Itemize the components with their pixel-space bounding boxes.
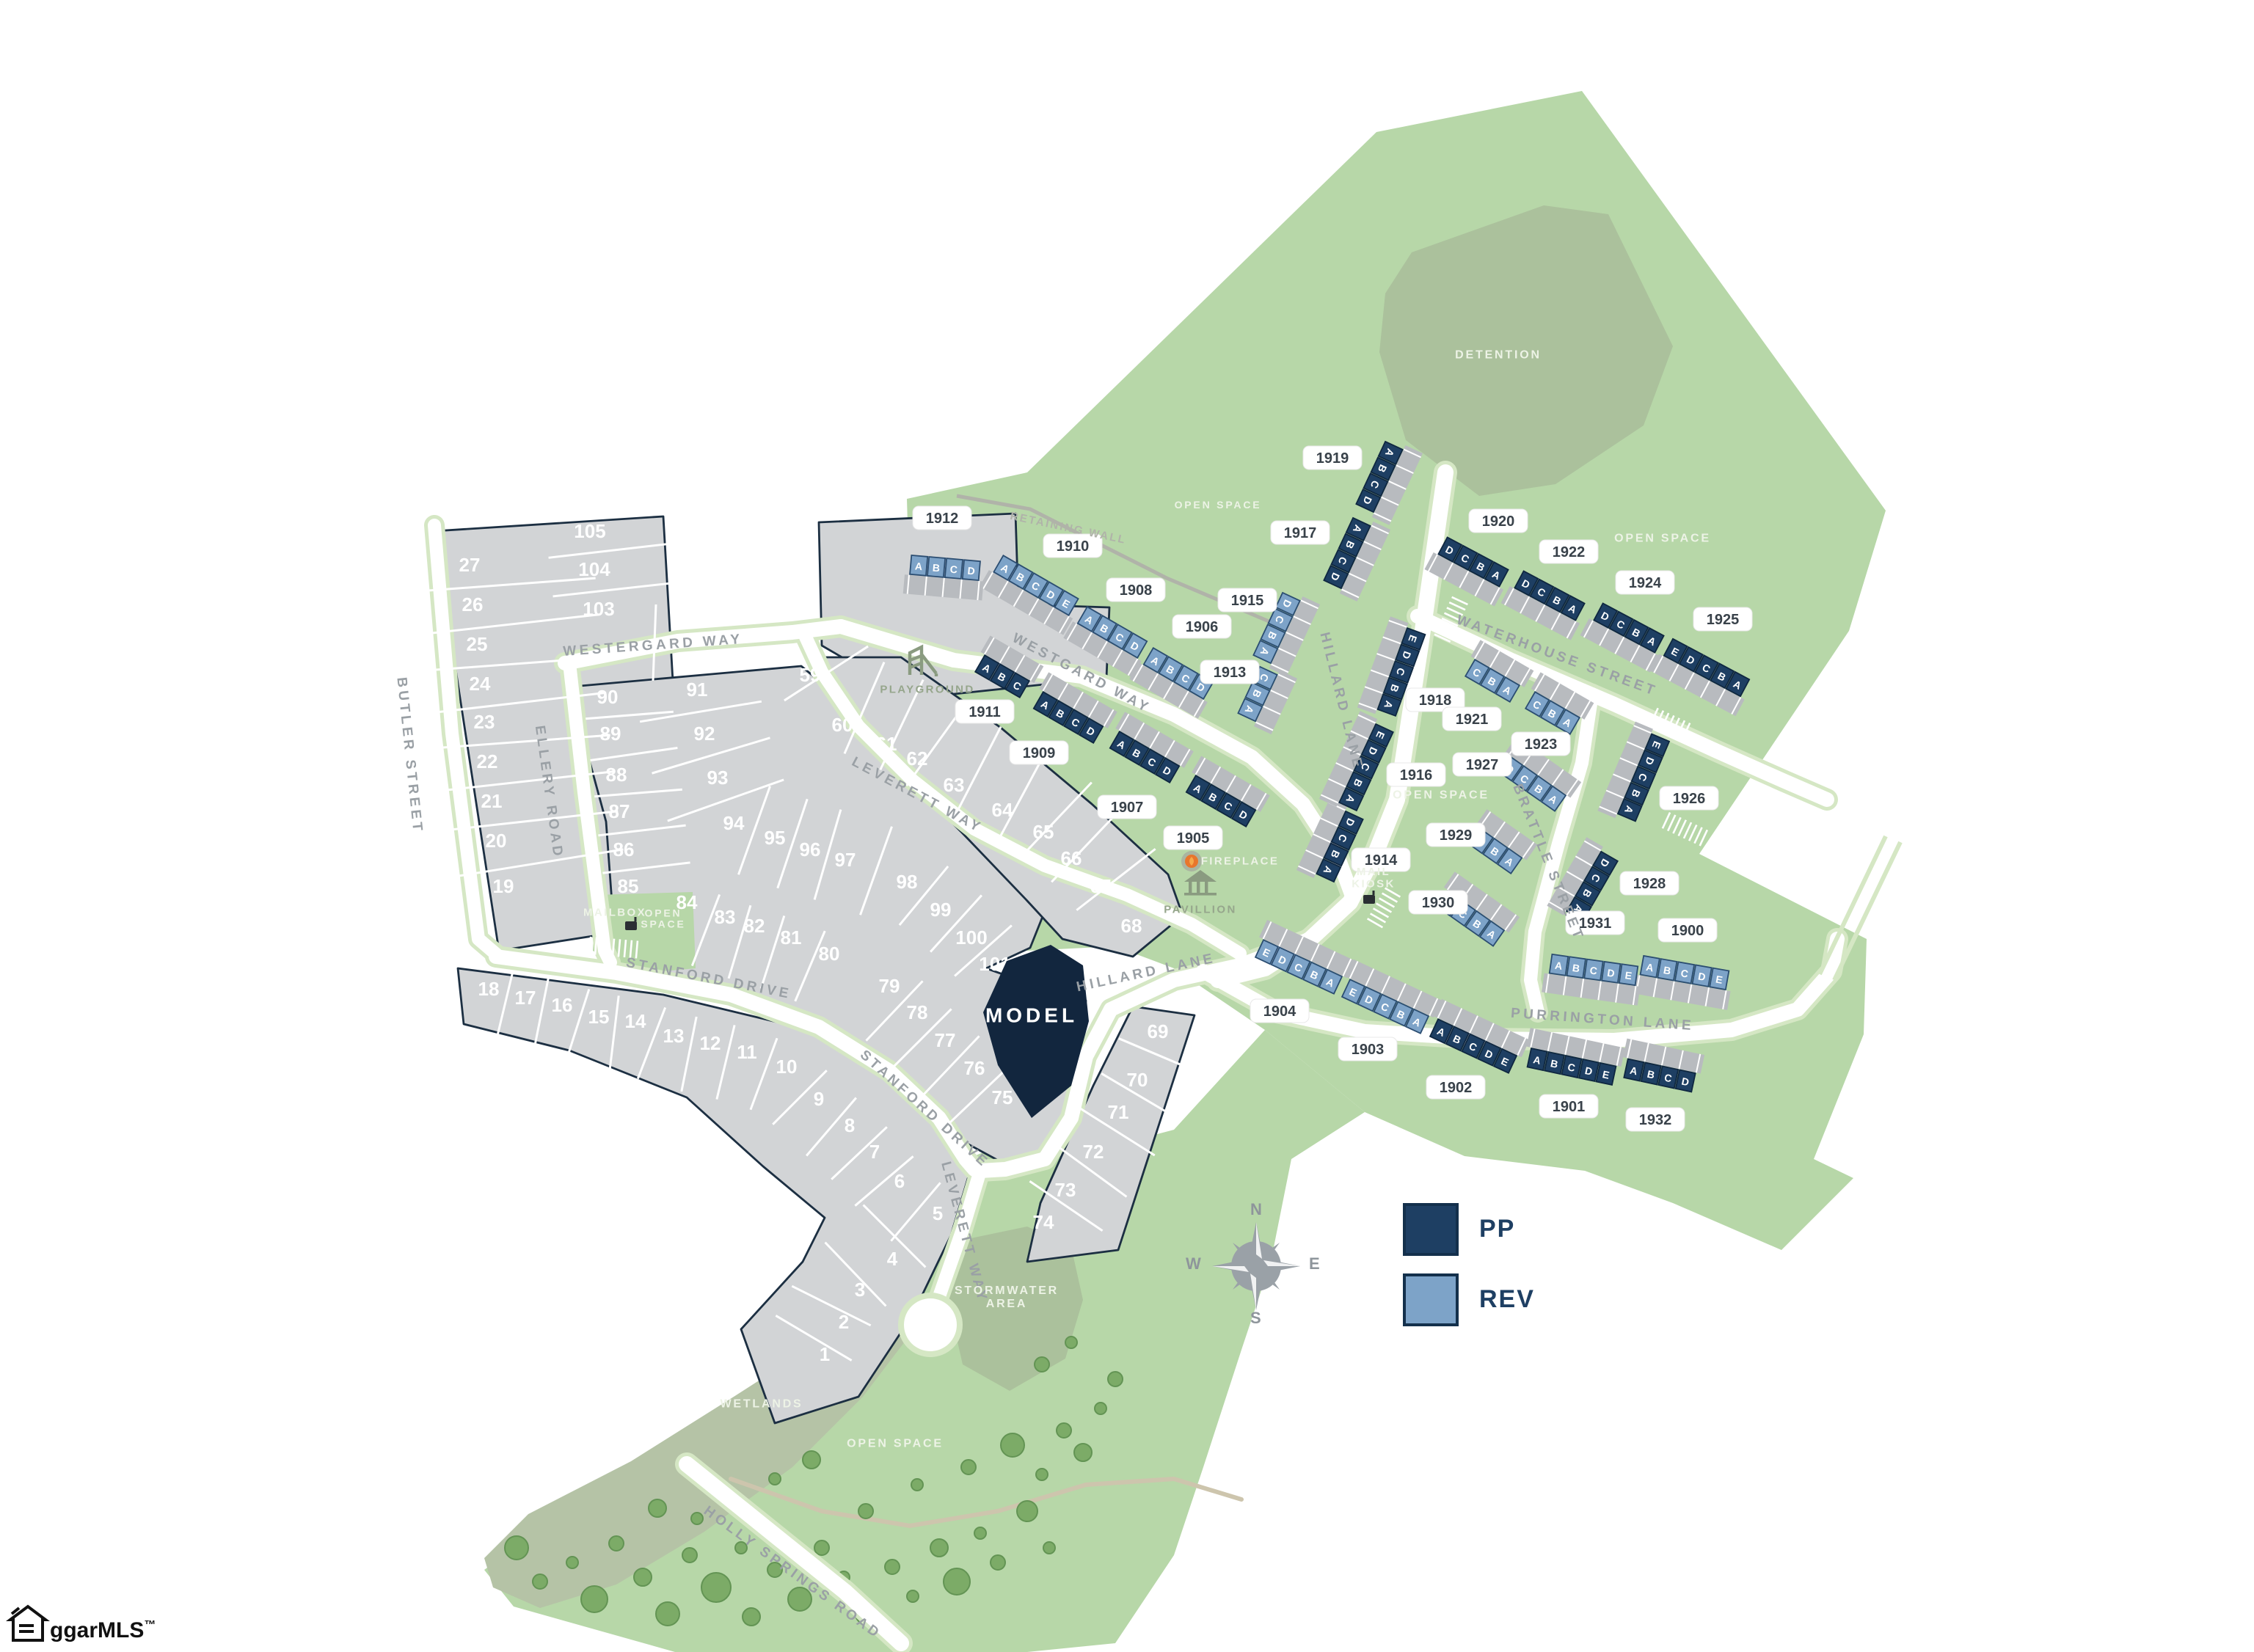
tree (682, 1548, 697, 1563)
pavilion-label: PAVILLION (1164, 904, 1236, 916)
watermark: ggarMLS™ (6, 1602, 156, 1643)
building-label-1915: 1915 (1218, 588, 1277, 612)
lot-73: 73 (1055, 1179, 1076, 1201)
lot-8: 8 (845, 1114, 855, 1136)
lot-12: 12 (700, 1032, 721, 1054)
lot-99: 99 (930, 899, 952, 921)
svg-text:1916: 1916 (1400, 767, 1433, 783)
unit-letter: C (949, 563, 958, 576)
tree (1036, 1469, 1048, 1480)
tree (885, 1560, 900, 1574)
lot-23: 23 (474, 711, 495, 733)
tree (743, 1608, 760, 1626)
tree (1057, 1423, 1071, 1438)
lot-81: 81 (781, 926, 802, 949)
tree (961, 1460, 976, 1474)
lot-60: 60 (832, 714, 853, 736)
tree (930, 1539, 948, 1557)
svg-text:1922: 1922 (1553, 544, 1586, 560)
compass-rose: N E S W (1197, 1207, 1315, 1325)
lot-103: 103 (583, 598, 614, 620)
svg-text:1921: 1921 (1456, 712, 1489, 728)
lot-77: 77 (935, 1029, 956, 1051)
building-label-1903: 1903 (1338, 1037, 1397, 1061)
lot-64: 64 (992, 799, 1013, 821)
unit-letter: C (1589, 964, 1598, 976)
lot-68: 68 (1121, 915, 1142, 937)
tree (701, 1573, 731, 1602)
building-label-1905: 1905 (1164, 826, 1222, 849)
tree (649, 1499, 666, 1517)
tree (858, 1504, 873, 1518)
tree (1065, 1337, 1077, 1348)
tree (803, 1451, 820, 1469)
building-label-1913: 1913 (1200, 660, 1259, 684)
building-label-1919: 1919 (1303, 446, 1362, 469)
lot-62: 62 (907, 748, 928, 770)
lot-79: 79 (879, 975, 900, 997)
lot-92: 92 (694, 723, 715, 745)
lot-96: 96 (800, 838, 821, 860)
site-map: 1234567891011121314151617181920212223242… (0, 0, 2254, 1652)
legend-item-pp: PP (1403, 1203, 1515, 1256)
building-label-1923: 1923 (1511, 732, 1570, 756)
building-label-1901: 1901 (1539, 1094, 1598, 1118)
svg-text:1917: 1917 (1284, 525, 1317, 541)
unit-letter: D (967, 565, 975, 577)
compass-n: N (1250, 1202, 1262, 1219)
svg-text:1927: 1927 (1466, 757, 1499, 773)
lot-89: 89 (600, 723, 621, 745)
lot-127: 127 (674, 586, 705, 608)
lot-7: 7 (869, 1141, 880, 1163)
lot-94: 94 (723, 812, 745, 834)
unit-letter: B (932, 562, 940, 574)
lot-85: 85 (618, 875, 639, 897)
lot-26: 26 (462, 593, 484, 615)
lot-11: 11 (737, 1041, 757, 1063)
building-label-1906: 1906 (1172, 615, 1231, 638)
svg-text:1928: 1928 (1633, 876, 1666, 892)
lot-59: 59 (800, 664, 821, 686)
tree (991, 1555, 1005, 1570)
svg-text:1910: 1910 (1057, 538, 1090, 555)
lot-87: 87 (609, 800, 630, 822)
lot-21: 21 (481, 790, 503, 812)
lot-76: 76 (964, 1057, 985, 1079)
svg-text:1919: 1919 (1316, 450, 1349, 467)
legend-swatch-pp (1403, 1203, 1459, 1256)
tree (609, 1536, 624, 1551)
svg-text:1912: 1912 (926, 511, 959, 527)
lot-14: 14 (625, 1010, 646, 1032)
lot-69: 69 (1148, 1020, 1169, 1042)
tree (1017, 1501, 1037, 1521)
tree (1043, 1542, 1055, 1554)
tree (1095, 1403, 1106, 1414)
building-label-1927: 1927 (1453, 753, 1511, 776)
lot-5: 5 (933, 1202, 943, 1224)
tree (944, 1568, 970, 1595)
svg-text:1931: 1931 (1579, 915, 1612, 932)
lot-17: 17 (515, 987, 536, 1009)
playground-label: PLAYGROUND (880, 684, 974, 696)
svg-text:1908: 1908 (1120, 582, 1153, 599)
building-label-1928: 1928 (1620, 871, 1679, 895)
building-label-1904: 1904 (1250, 999, 1309, 1023)
lot-1: 1 (820, 1343, 830, 1365)
lot-2: 2 (839, 1311, 849, 1333)
tree (505, 1536, 528, 1560)
svg-text:1907: 1907 (1111, 800, 1144, 816)
watermark-text: ggarMLS™ (50, 1618, 156, 1643)
building-label-1907: 1907 (1098, 795, 1156, 819)
building-label-1909: 1909 (1010, 741, 1068, 764)
lot-22: 22 (477, 750, 498, 772)
lot-61: 61 (876, 733, 897, 755)
svg-text:1902: 1902 (1440, 1080, 1473, 1096)
tree (907, 1590, 919, 1602)
lot-105: 105 (574, 520, 605, 542)
building-label-1922: 1922 (1539, 540, 1598, 563)
lot-72: 72 (1083, 1141, 1104, 1163)
lot-71: 71 (1108, 1101, 1129, 1123)
svg-text:1923: 1923 (1525, 737, 1558, 753)
unit-letter: A (914, 560, 922, 572)
svg-text:1920: 1920 (1482, 513, 1515, 530)
tree (974, 1527, 986, 1539)
lot-15: 15 (588, 1006, 610, 1028)
building-label-1930: 1930 (1409, 891, 1467, 914)
lot-91: 91 (687, 679, 708, 701)
lot-88: 88 (606, 764, 627, 786)
compass-icon (1197, 1207, 1315, 1325)
area-label: OPEN SPACE (1393, 789, 1489, 802)
svg-text:1924: 1924 (1629, 575, 1662, 591)
watermark-house-icon (6, 1602, 50, 1643)
svg-text:1911: 1911 (969, 704, 1000, 720)
legend-item-rev: REV (1403, 1273, 1535, 1326)
lot-78: 78 (907, 1001, 928, 1023)
tree (566, 1557, 578, 1568)
tree (769, 1473, 781, 1485)
lot-13: 13 (663, 1025, 685, 1047)
area-label: DETENTION (1455, 349, 1542, 362)
building-label-1902: 1902 (1426, 1075, 1485, 1099)
tree (814, 1540, 829, 1555)
svg-text:1932: 1932 (1639, 1112, 1672, 1128)
lot-65: 65 (1033, 821, 1054, 843)
tree (1108, 1372, 1123, 1386)
area-label: OPEN SPACE (1614, 533, 1711, 545)
building-label-1929: 1929 (1426, 823, 1485, 847)
svg-text:1930: 1930 (1422, 895, 1455, 911)
lot-98: 98 (897, 871, 918, 893)
lot-86: 86 (613, 838, 635, 860)
tree (581, 1586, 608, 1612)
cul-de-sac (904, 1298, 957, 1351)
lot-3: 3 (855, 1279, 865, 1301)
svg-text:1925: 1925 (1707, 612, 1740, 628)
area-label: OPEN SPACE (847, 1438, 944, 1450)
building-label-1916: 1916 (1387, 763, 1445, 786)
building-label-1925: 1925 (1693, 607, 1752, 631)
lot-27: 27 (459, 554, 481, 576)
tree (656, 1602, 679, 1626)
legend-swatch-rev (1403, 1273, 1459, 1326)
lot-4: 4 (887, 1248, 898, 1270)
svg-text:1903: 1903 (1352, 1042, 1385, 1058)
compass-w: W (1186, 1256, 1201, 1273)
tree (1035, 1357, 1049, 1372)
lot-74: 74 (1033, 1211, 1054, 1233)
road-stub (1834, 842, 1900, 980)
lot-75: 75 (992, 1086, 1013, 1108)
tree (1001, 1433, 1024, 1457)
compass-e: E (1309, 1256, 1320, 1273)
lot-80: 80 (819, 943, 840, 965)
lot-66: 66 (1061, 847, 1082, 869)
lot-6: 6 (894, 1170, 905, 1192)
building-label-1912: 1912 (913, 506, 971, 530)
lot-100: 100 (955, 926, 987, 949)
svg-text:1901: 1901 (1553, 1099, 1586, 1115)
legend-label-rev: REV (1479, 1285, 1535, 1315)
lot-18: 18 (478, 978, 500, 1000)
svg-text:1926: 1926 (1673, 791, 1706, 807)
building-label-1917: 1917 (1271, 521, 1330, 544)
area-label: WETLANDS (720, 1398, 803, 1411)
lot-95: 95 (765, 827, 786, 849)
area-label: OPENSPACE (641, 907, 685, 929)
building-label-1921: 1921 (1443, 707, 1501, 731)
lot-63: 63 (944, 774, 965, 796)
lot-25: 25 (467, 633, 488, 655)
svg-text:1906: 1906 (1186, 619, 1219, 635)
lot-67: 67 (1090, 875, 1112, 897)
lot-24: 24 (470, 673, 491, 695)
svg-text:1900: 1900 (1671, 923, 1704, 939)
tree (911, 1479, 923, 1491)
tree (533, 1574, 547, 1589)
svg-text:1913: 1913 (1214, 665, 1247, 681)
building-label-1926: 1926 (1660, 786, 1718, 810)
compass-s: S (1250, 1310, 1261, 1328)
lot-70: 70 (1127, 1069, 1148, 1091)
lot-82: 82 (744, 915, 765, 937)
street-label: BUTLER STREET (393, 676, 425, 835)
legend-label-pp: PP (1479, 1215, 1515, 1244)
svg-text:1929: 1929 (1440, 827, 1473, 844)
mailbox-label: MAILBOX (583, 907, 646, 919)
building-label-1920: 1920 (1469, 509, 1528, 533)
building-label-1932: 1932 (1626, 1108, 1685, 1131)
mailbox-label: MAILKIOSK (1352, 865, 1396, 890)
lot-83: 83 (715, 906, 736, 928)
svg-text:1905: 1905 (1177, 830, 1210, 847)
lot-104: 104 (578, 558, 610, 580)
site-plan-svg: 1234567891011121314151617181920212223242… (0, 0, 2254, 1652)
building-label-1900: 1900 (1658, 918, 1717, 942)
lot-19: 19 (493, 875, 514, 897)
area-label: OPEN SPACE (1175, 499, 1262, 511)
tree (634, 1568, 652, 1586)
svg-text:1904: 1904 (1263, 1004, 1296, 1020)
tree (1074, 1444, 1092, 1461)
lot-20: 20 (486, 830, 507, 852)
building-label-1911: 1911 (955, 700, 1014, 723)
lot-90: 90 (597, 686, 619, 708)
svg-text:1915: 1915 (1231, 593, 1264, 609)
fireplace-label: FIREPLACE (1201, 855, 1280, 868)
lot-97: 97 (835, 849, 856, 871)
fireplace-icon (1181, 851, 1202, 871)
model-label: MODEL (985, 1004, 1078, 1027)
building-label-1908: 1908 (1106, 578, 1165, 602)
building-label-1924: 1924 (1616, 571, 1674, 594)
lot-16: 16 (552, 994, 573, 1016)
svg-text:1909: 1909 (1023, 745, 1056, 761)
lot-93: 93 (707, 767, 729, 789)
lot-9: 9 (814, 1088, 824, 1110)
lot-10: 10 (776, 1056, 798, 1078)
svg-text:1918: 1918 (1419, 692, 1452, 709)
